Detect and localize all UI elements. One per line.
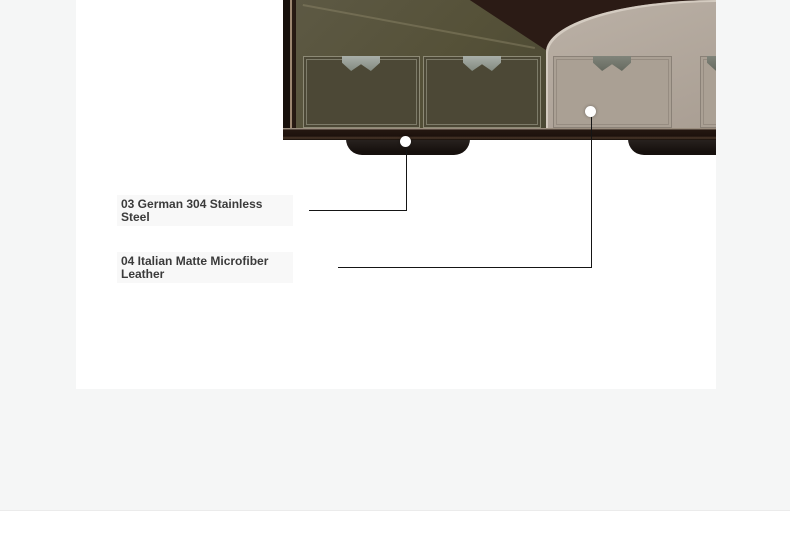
leader-line-steel-horizontal [309,210,407,211]
callout-label-microfiber-leather: 04 Italian Matte Microfiber Leather [117,252,293,283]
leader-line-steel-vertical [406,147,407,211]
product-photo [283,0,716,156]
callout-marker-dot-leather [585,106,596,117]
detail-content-panel: 03 German 304 Stainless Steel 04 Italian… [76,0,716,389]
storage-drawer [303,56,420,128]
storage-drawer [553,56,672,128]
wood-base-rail [283,128,716,140]
product-detail-page: 03 German 304 Stainless Steel 04 Italian… [0,0,790,552]
leader-line-leather-vertical [591,117,592,268]
wood-frame-edge [283,0,296,140]
callout-marker-dot-steel [400,136,411,147]
storage-drawer [423,56,541,128]
callout-label-stainless-steel: 03 German 304 Stainless Steel [117,195,293,226]
leader-line-leather-horizontal [338,267,592,268]
